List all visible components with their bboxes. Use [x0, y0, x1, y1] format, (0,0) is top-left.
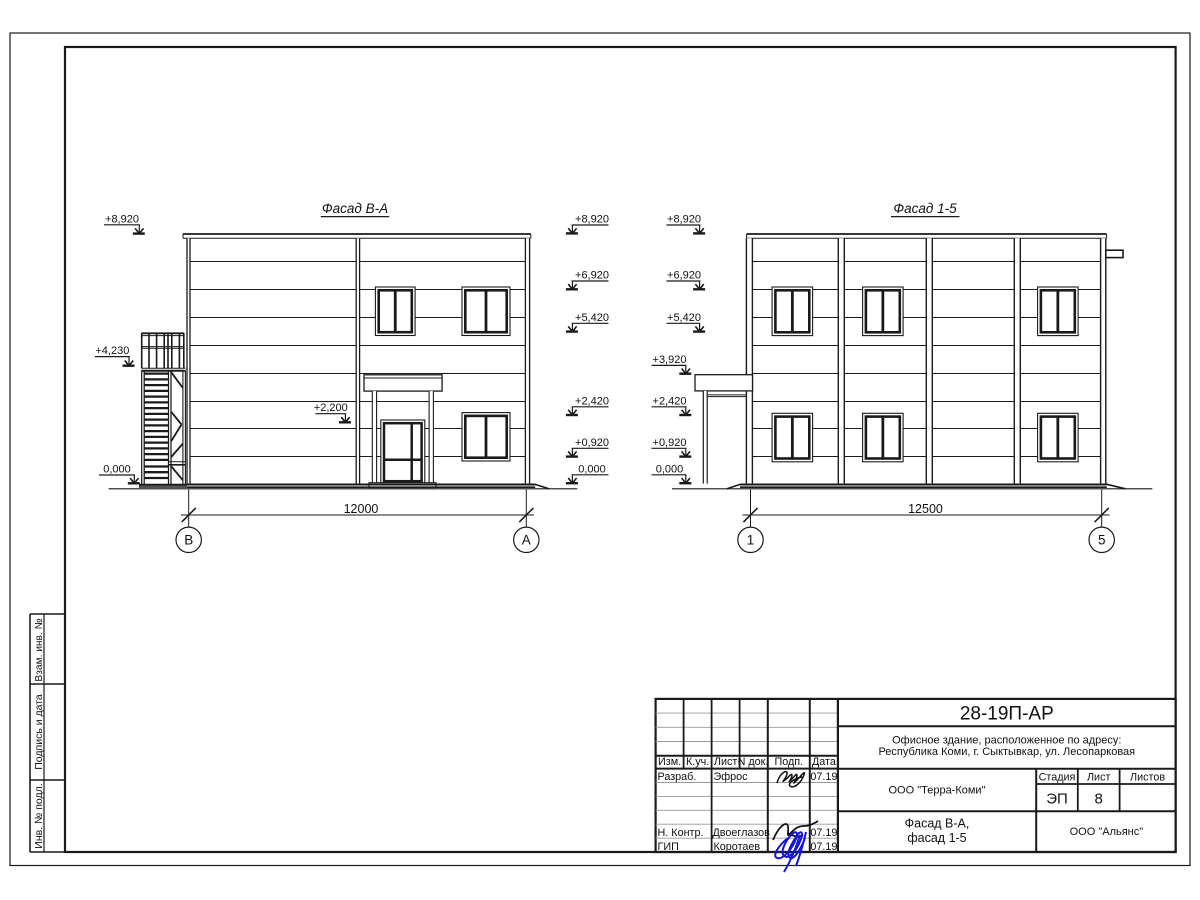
svg-text:Подпись и дата: Подпись и дата [33, 694, 45, 770]
svg-text:Изм.: Изм. [658, 756, 681, 768]
svg-text:5: 5 [1098, 533, 1106, 548]
svg-text:+6,920: +6,920 [575, 270, 609, 282]
svg-text:Н. Контр.: Н. Контр. [658, 827, 704, 839]
svg-text:+8,920: +8,920 [105, 213, 139, 225]
svg-text:0,000: 0,000 [656, 463, 684, 475]
svg-text:Двоеглазов: Двоеглазов [713, 827, 771, 839]
svg-text:ГИП: ГИП [658, 841, 679, 853]
svg-text:Листов: Листов [1130, 772, 1165, 784]
svg-text:0,000: 0,000 [103, 464, 131, 476]
svg-text:Стадия: Стадия [1039, 772, 1076, 784]
svg-text:Офисное здание, расположенное: Офисное здание, расположенное по адресу: [892, 735, 1121, 747]
svg-text:В: В [184, 533, 193, 548]
svg-text:+2,420: +2,420 [653, 395, 687, 407]
svg-text:+0,920: +0,920 [653, 437, 687, 449]
svg-text:+2,420: +2,420 [575, 395, 609, 407]
svg-text:+5,420: +5,420 [667, 312, 701, 324]
svg-text:Лист: Лист [714, 756, 738, 768]
svg-text:Лист: Лист [1087, 772, 1111, 784]
svg-text:Эфрос: Эфрос [714, 771, 749, 783]
svg-text:Фасад В-А,: Фасад В-А, [905, 817, 970, 831]
svg-text:А: А [522, 533, 531, 548]
svg-text:07.19: 07.19 [810, 841, 837, 853]
svg-text:Дата: Дата [812, 756, 836, 768]
svg-text:N док.: N док. [738, 756, 769, 768]
svg-text:Инв. № подл.: Инв. № подл. [33, 783, 45, 848]
svg-text:Подп.: Подп. [774, 756, 803, 768]
svg-text:07.19: 07.19 [810, 771, 837, 783]
svg-text:8: 8 [1095, 791, 1103, 808]
svg-text:+3,920: +3,920 [653, 354, 687, 366]
svg-text:Коротаев: Коротаев [714, 841, 761, 853]
svg-text:Фасад 1-5: Фасад 1-5 [893, 201, 957, 216]
svg-text:0,000: 0,000 [578, 463, 606, 475]
svg-text:Фасад В-А: Фасад В-А [322, 201, 388, 216]
svg-text:12000: 12000 [344, 502, 379, 516]
svg-text:+6,920: +6,920 [667, 270, 701, 282]
svg-text:+8,920: +8,920 [575, 214, 609, 226]
svg-text:1: 1 [747, 533, 755, 548]
svg-text:+8,920: +8,920 [667, 214, 701, 226]
svg-text:Республика Коми, г. Сыктывкар,: Республика Коми, г. Сыктывкар, ул. Лесоп… [878, 746, 1135, 758]
svg-text:ООО "Терра-Коми": ООО "Терра-Коми" [888, 785, 985, 797]
svg-text:ЭП: ЭП [1046, 791, 1068, 808]
svg-text:+0,920: +0,920 [575, 437, 609, 449]
svg-text:+5,420: +5,420 [575, 312, 609, 324]
svg-text:ООО "Альянс": ООО "Альянс" [1070, 826, 1144, 838]
svg-text:12500: 12500 [908, 502, 943, 516]
svg-text:фасад 1-5: фасад 1-5 [907, 831, 966, 845]
svg-text:Взам. инв. №: Взам. инв. № [34, 618, 45, 681]
svg-text:К.уч.: К.уч. [686, 756, 709, 768]
svg-text:+4,230: +4,230 [95, 345, 129, 357]
svg-text:Разраб.: Разраб. [658, 771, 697, 783]
svg-text:28-19П-АР: 28-19П-АР [960, 704, 1054, 725]
svg-text:+2,200: +2,200 [314, 402, 348, 414]
svg-text:07.19: 07.19 [810, 827, 837, 839]
